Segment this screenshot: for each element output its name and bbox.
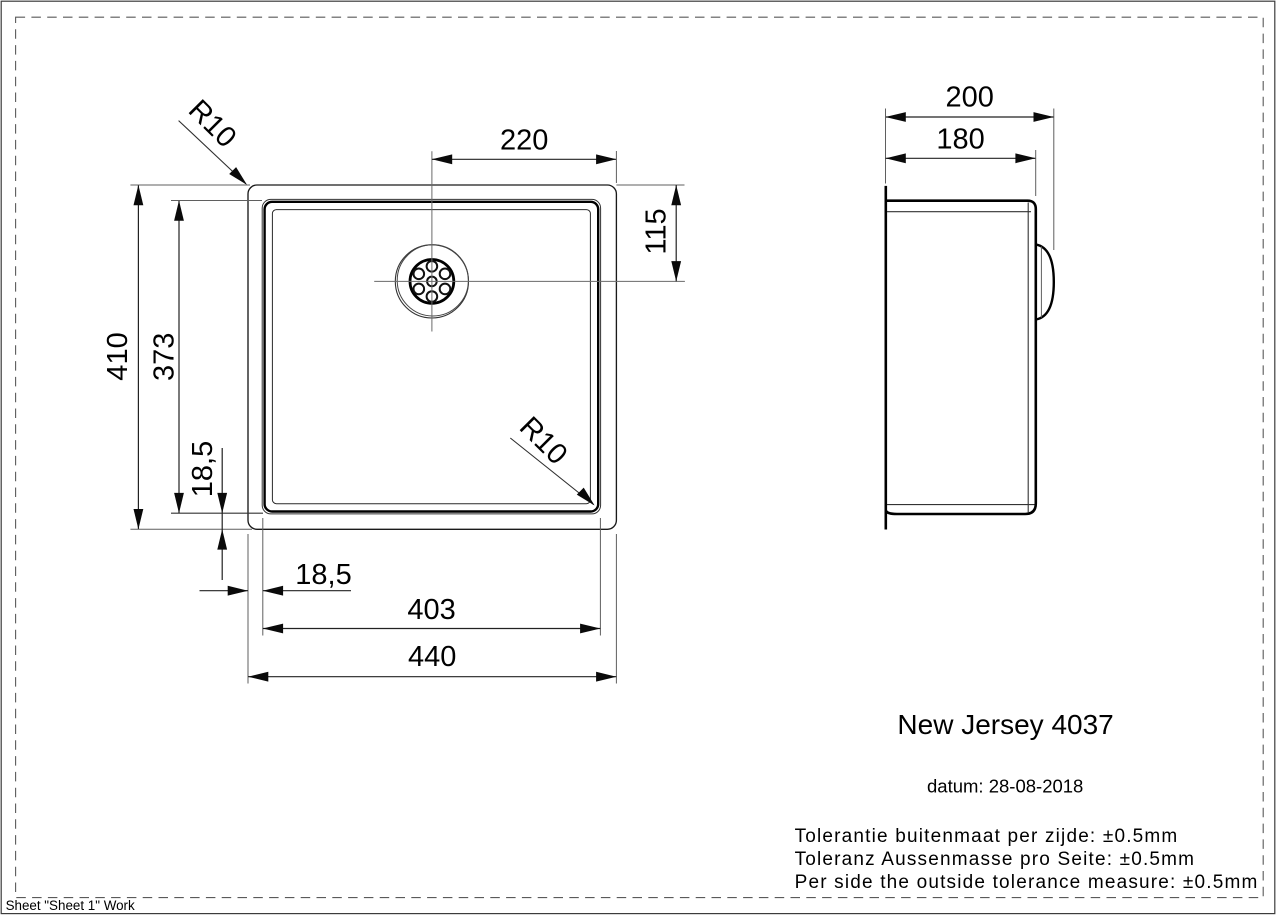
- svg-text:New Jersey 4037: New Jersey 4037: [897, 709, 1113, 740]
- svg-text:220: 220: [500, 125, 548, 157]
- svg-text:datum: 28-08-2018: datum: 28-08-2018: [927, 776, 1083, 797]
- svg-text:373: 373: [149, 333, 181, 381]
- svg-text:115: 115: [640, 208, 672, 254]
- svg-text:Tolerantie buitenmaat per zijd: Tolerantie buitenmaat per zijde: ±0.5mm: [795, 826, 1179, 847]
- svg-text:200: 200: [946, 81, 994, 113]
- svg-text:Toleranz Aussenmasse pro Seite: Toleranz Aussenmasse pro Seite: ±0.5mm: [795, 849, 1196, 870]
- svg-text:180: 180: [936, 123, 984, 155]
- svg-text:410: 410: [102, 332, 134, 380]
- svg-text:440: 440: [408, 641, 456, 673]
- svg-text:Per side the outside tolerance: Per side the outside tolerance measure: …: [795, 872, 1259, 893]
- svg-text:18,5: 18,5: [187, 441, 219, 497]
- svg-text:18,5: 18,5: [295, 559, 351, 591]
- svg-text:Sheet "Sheet 1" Work: Sheet "Sheet 1" Work: [6, 898, 135, 913]
- svg-text:403: 403: [407, 594, 455, 626]
